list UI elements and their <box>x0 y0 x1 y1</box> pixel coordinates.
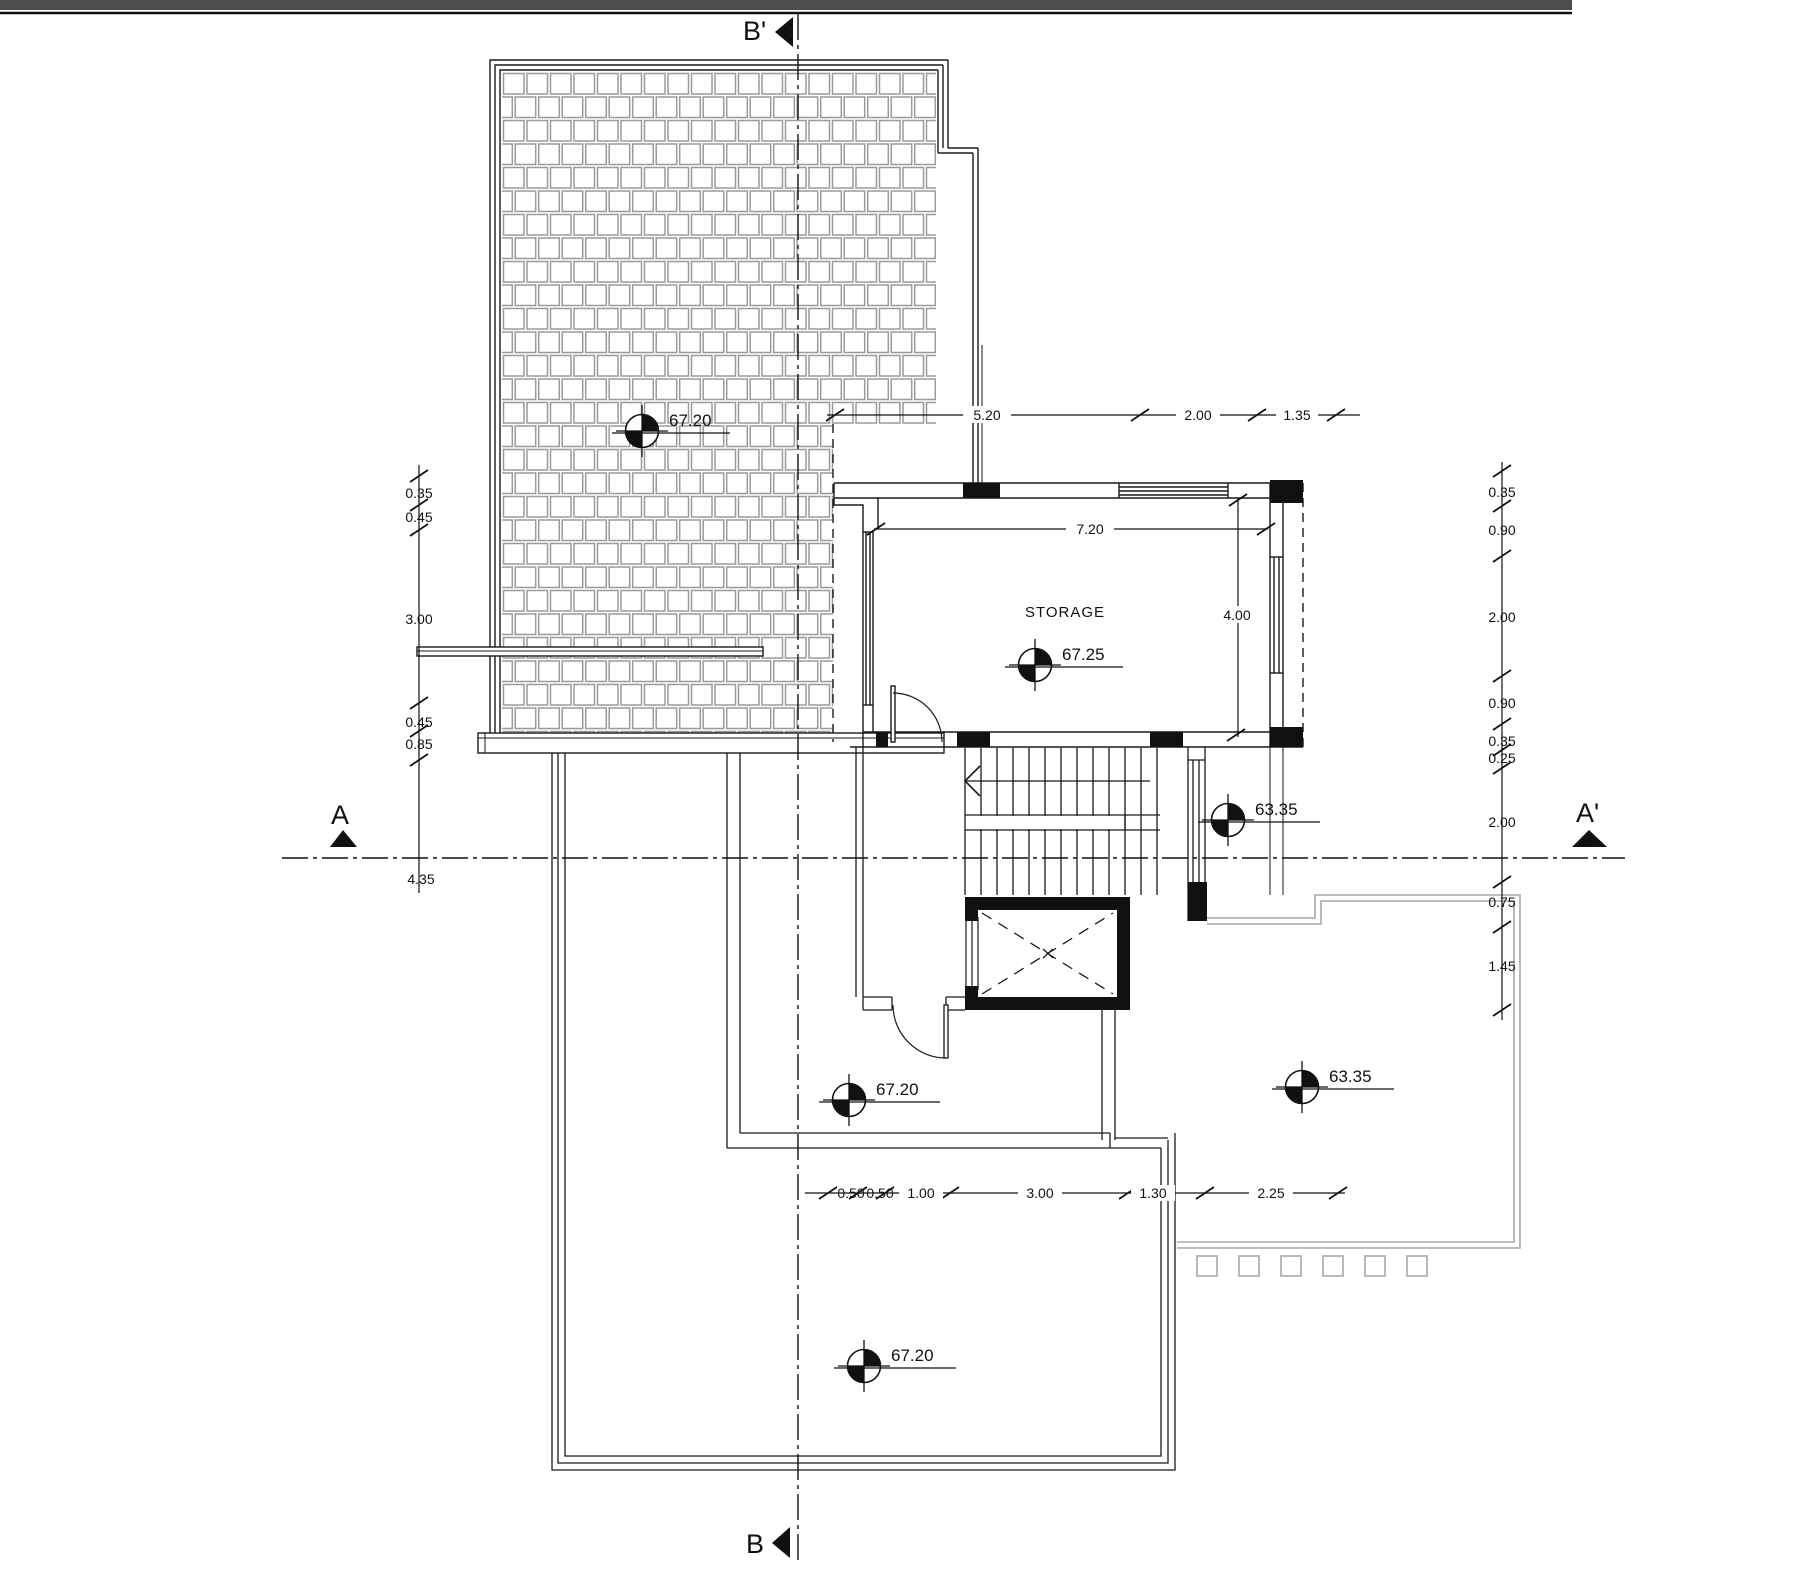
section-marker-a <box>330 830 357 847</box>
pergola-columns <box>1197 1256 1427 1276</box>
level-marker-storage: 67.25 <box>1005 639 1123 691</box>
section-label-a-prime: A' <box>1576 798 1599 828</box>
svg-text:7.20: 7.20 <box>1076 521 1103 537</box>
svg-text:67.20: 67.20 <box>891 1346 934 1365</box>
svg-text:0.35: 0.35 <box>1488 484 1515 500</box>
svg-text:4.35: 4.35 <box>407 871 434 887</box>
level-marker-mid-terrace: 67.20 <box>819 1074 940 1126</box>
section-marker-a-prime <box>1572 830 1607 847</box>
roof-step-band <box>417 647 763 656</box>
svg-text:63.35: 63.35 <box>1329 1067 1372 1086</box>
svg-text:0.45: 0.45 <box>405 714 432 730</box>
svg-text:0.35: 0.35 <box>1488 733 1515 749</box>
svg-text:67.25: 67.25 <box>1062 645 1105 664</box>
dim-chain-bottom: 0.50 0.50 1.00 3.00 1.30 2.25 <box>805 1185 1347 1201</box>
roof-bottom-ledge <box>478 733 944 753</box>
svg-text:63.35: 63.35 <box>1255 800 1298 819</box>
svg-text:4.00: 4.00 <box>1223 607 1250 623</box>
elevator-shaft <box>965 897 1130 1140</box>
svg-text:0.50: 0.50 <box>866 1185 893 1201</box>
hall-door <box>893 1005 948 1058</box>
svg-text:2.25: 2.25 <box>1257 1185 1284 1201</box>
svg-text:0.75: 0.75 <box>1488 894 1515 910</box>
svg-text:1.00: 1.00 <box>907 1185 934 1201</box>
stair-direction-arrow <box>965 766 1150 796</box>
roof-tile-hatch <box>502 72 936 733</box>
level-marker-lower-terrace: 67.20 <box>834 1340 956 1392</box>
svg-text:0.25: 0.25 <box>1488 750 1515 766</box>
storage-room-label: STORAGE <box>1025 604 1105 621</box>
section-label-a: A <box>331 800 349 830</box>
top-frame-bar <box>0 0 1572 13</box>
svg-text:3.00: 3.00 <box>1026 1185 1053 1201</box>
svg-text:0.90: 0.90 <box>1488 522 1515 538</box>
svg-text:67.20: 67.20 <box>669 411 712 430</box>
dim-chain-right: 0.35 0.90 2.00 0.90 0.35 0.25 2.00 0.75 … <box>1488 462 1515 1020</box>
svg-text:1.35: 1.35 <box>1283 407 1310 423</box>
svg-text:0.45: 0.45 <box>405 509 432 525</box>
svg-text:2.00: 2.00 <box>1488 609 1515 625</box>
level-marker-stair-landing: 63.35 <box>1198 794 1320 846</box>
storage-right-window <box>1270 557 1283 673</box>
svg-text:1.30: 1.30 <box>1139 1185 1166 1201</box>
section-label-b-prime: B' <box>743 16 766 46</box>
svg-text:1.45: 1.45 <box>1488 958 1515 974</box>
section-marker-b-prime <box>775 17 793 47</box>
svg-text:0.85: 0.85 <box>405 736 432 752</box>
svg-text:0.90: 0.90 <box>1488 695 1515 711</box>
roof-terrace <box>417 60 982 753</box>
svg-text:0.50: 0.50 <box>837 1185 864 1201</box>
svg-text:5.20: 5.20 <box>973 407 1000 423</box>
dim-chain-left: 0.35 0.45 3.00 0.45 0.85 4.35 <box>405 465 434 893</box>
svg-text:0.35: 0.35 <box>405 485 432 501</box>
svg-text:2.00: 2.00 <box>1184 407 1211 423</box>
svg-text:67.20: 67.20 <box>876 1080 919 1099</box>
storage-left-window <box>863 532 873 705</box>
elevator-door <box>966 917 978 990</box>
floor-plan-drawing: A A' B' B STORAGE 67.20 67.25 63.35 <box>0 0 1807 1589</box>
elevator-x <box>982 913 1113 994</box>
stair-landing <box>965 815 1160 830</box>
storage-top-window <box>1119 483 1228 498</box>
section-label-b: B <box>746 1529 764 1559</box>
dim-storage-depth: 4.00 <box>1214 494 1260 741</box>
dim-storage-width: 7.20 <box>867 520 1275 537</box>
svg-text:2.00: 2.00 <box>1488 814 1515 830</box>
floor-plan-canvas: A A' B' B STORAGE 67.20 67.25 63.35 <box>0 0 1807 1589</box>
section-marker-b <box>772 1527 790 1558</box>
level-marker-balcony: 63.35 <box>1272 1061 1394 1113</box>
section-line-aa: A A' <box>282 798 1625 858</box>
svg-text:3.00: 3.00 <box>405 611 432 627</box>
